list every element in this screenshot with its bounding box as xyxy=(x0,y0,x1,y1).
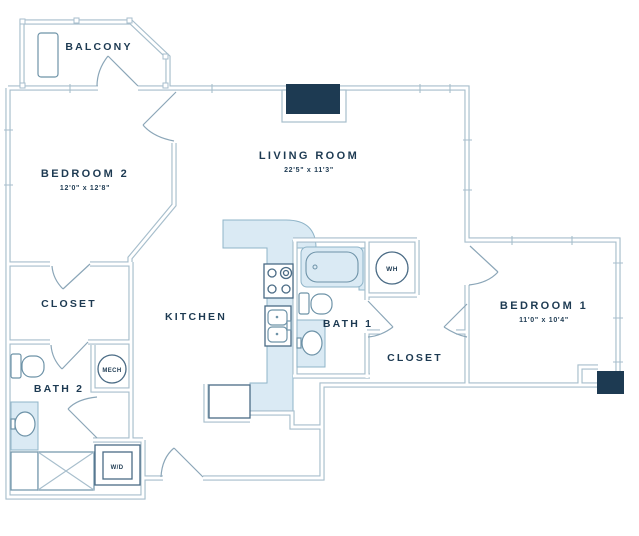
structural-column xyxy=(597,371,624,394)
bath1-sink-icon xyxy=(297,320,325,367)
entry-door-arc xyxy=(161,448,203,477)
stove-icon xyxy=(264,264,293,298)
bath1-fixtures xyxy=(297,247,363,367)
water-heater-icon: WH xyxy=(376,252,408,284)
bath2-label: BATH 2 xyxy=(34,383,84,395)
floor-plan-page: WH MECH W/D xyxy=(0,0,639,536)
washer-dryer-label: W/D xyxy=(111,465,124,471)
mech-unit-icon: MECH xyxy=(98,355,126,383)
floor-plan: WH MECH W/D xyxy=(0,0,639,536)
bedroom2-label: BEDROOM 2 xyxy=(41,168,129,180)
closet-left-door-arc xyxy=(52,264,90,289)
toilet-icon xyxy=(299,293,332,314)
bedroom1-dimensions: 11'0" x 10'4" xyxy=(519,317,569,324)
bedroom2-dimensions: 12'0" x 12'8" xyxy=(60,185,110,192)
closet-right-label: CLOSET xyxy=(387,352,443,364)
balcony-door-arc xyxy=(97,56,138,86)
kitchen-label: KITCHEN xyxy=(165,311,227,323)
hall-door-arc xyxy=(68,397,97,438)
closet-left-label: CLOSET xyxy=(41,298,97,310)
balcony-label: BALCONY xyxy=(65,41,132,53)
utility-shaft xyxy=(282,84,346,122)
refrigerator-icon xyxy=(209,385,250,418)
mech-label: MECH xyxy=(102,368,121,374)
living-room-label: LIVING ROOM xyxy=(259,150,359,162)
kitchen-sink-icon xyxy=(265,306,291,346)
bedroom1-label: BEDROOM 1 xyxy=(500,300,588,312)
toilet-icon-2 xyxy=(11,354,44,378)
bedroom2-door-arc xyxy=(143,92,176,141)
bedroom1-door-arc xyxy=(469,246,498,285)
balcony-storage-icon xyxy=(38,33,58,77)
bath2-sink-icon xyxy=(11,402,38,450)
water-heater-label: WH xyxy=(386,266,398,273)
washer-dryer-icon: W/D xyxy=(95,445,140,485)
bath2-door-arc xyxy=(51,342,88,369)
bath1-label: BATH 1 xyxy=(323,318,373,330)
bath2-cabinet xyxy=(11,452,38,490)
shower-icon xyxy=(38,452,94,490)
bathtub-icon xyxy=(301,247,363,287)
living-room-dimensions: 22'5" x 11'3" xyxy=(284,167,334,174)
